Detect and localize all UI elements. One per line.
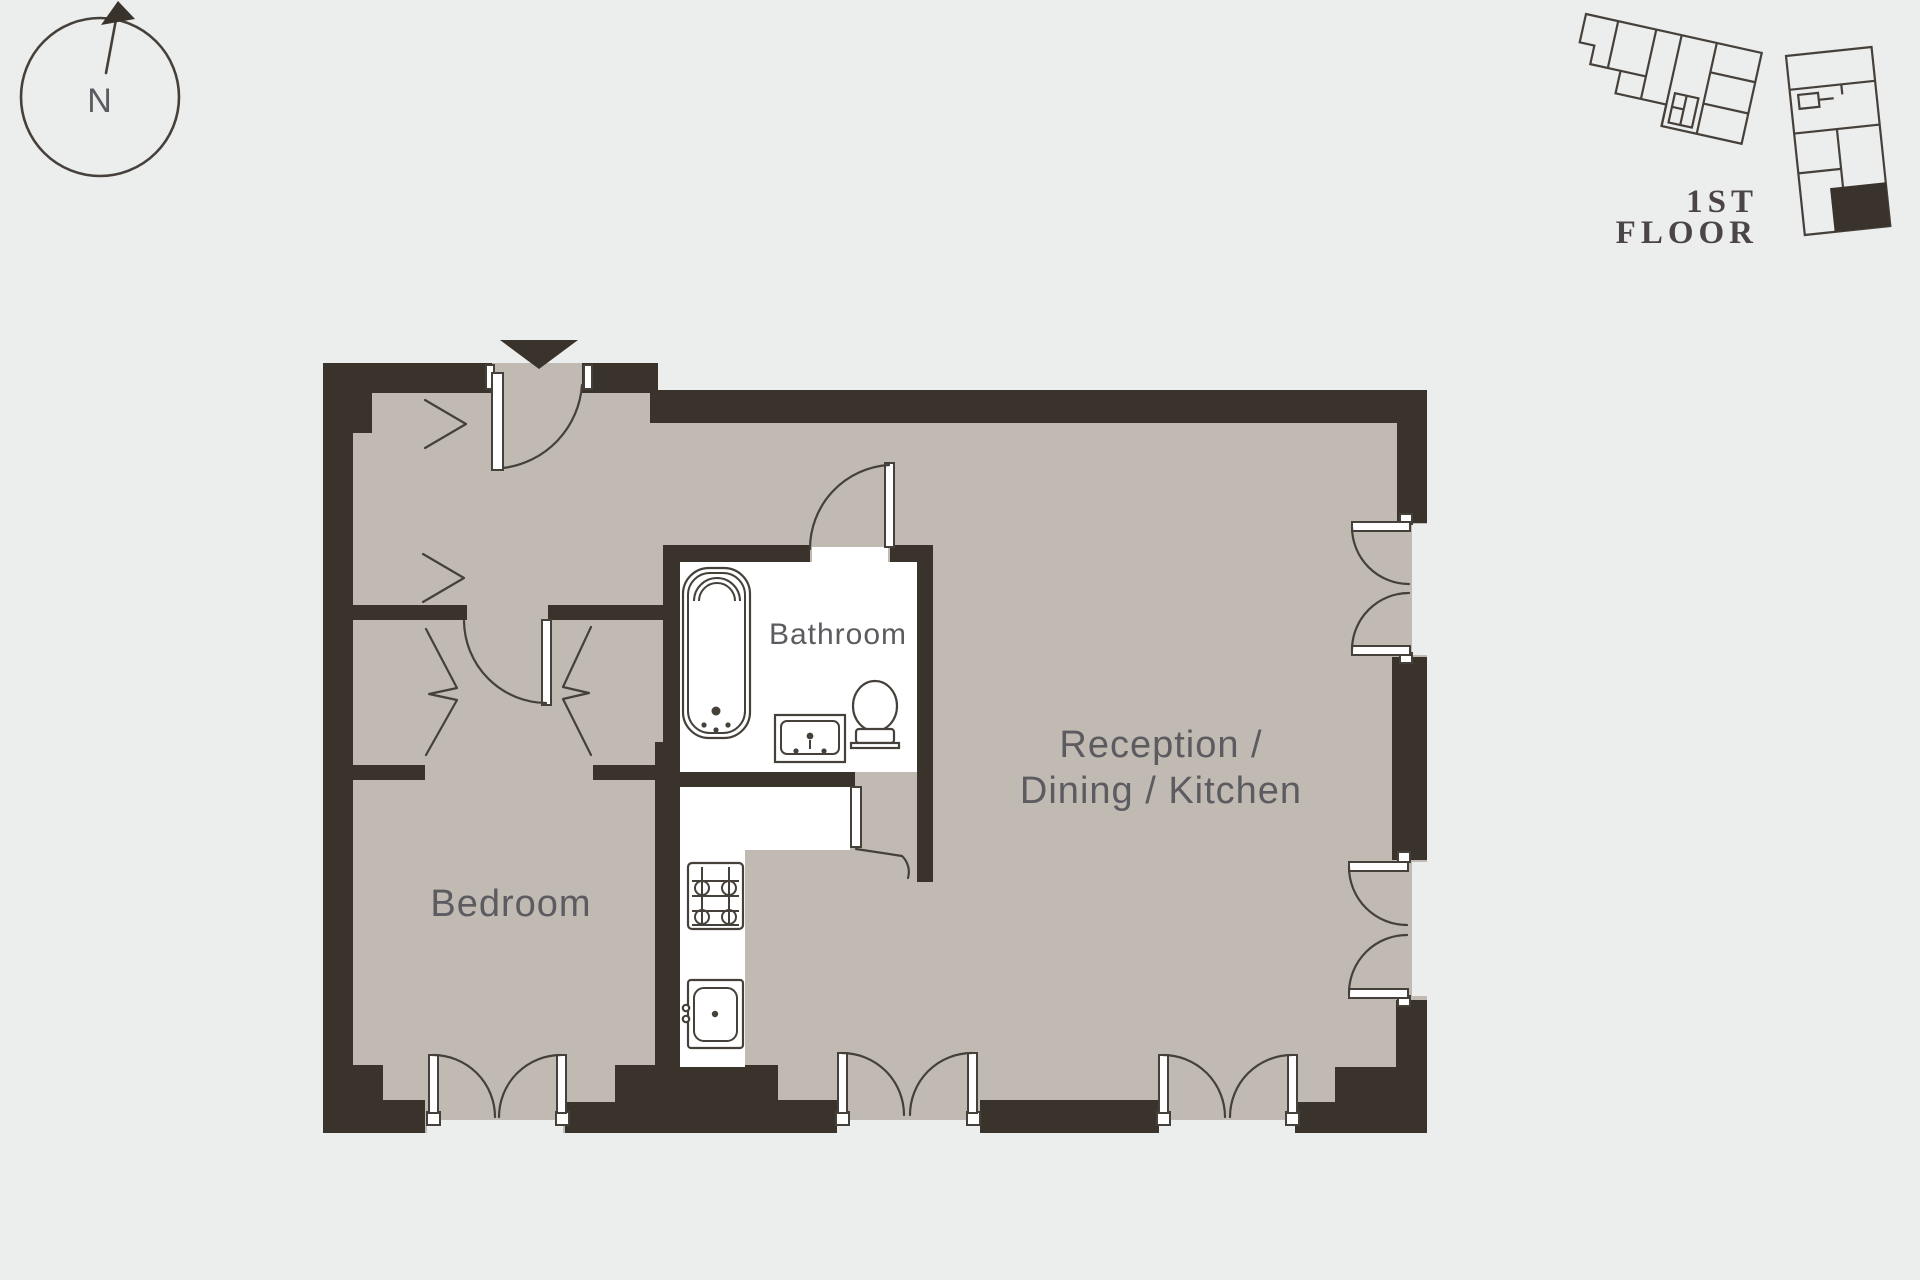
wall-segment: [615, 1065, 778, 1133]
site-building-right: [1786, 47, 1890, 235]
door-leaf: [968, 1053, 977, 1113]
north-arrow-icon: [101, 1, 135, 25]
wall-segment: [1392, 657, 1427, 860]
door-leaf: [1352, 522, 1410, 531]
compass-north-label: N: [87, 82, 113, 120]
wall-segment: [1335, 1067, 1396, 1133]
wall-segment: [323, 363, 353, 1065]
kitchen-sink: [683, 980, 743, 1048]
door-jamb: [1398, 852, 1410, 862]
site-building-left: [1566, 14, 1762, 144]
door-jamb: [584, 365, 592, 389]
door-leaf: [1352, 646, 1410, 655]
wall-segment: [353, 605, 467, 620]
room-label-reception-line1: Reception /: [1059, 724, 1262, 766]
wall-segment: [663, 545, 680, 775]
highlighted-unit: [1830, 182, 1890, 232]
washbasin: [775, 715, 845, 762]
door-leaf: [429, 1055, 438, 1113]
wall-segment: [565, 1102, 615, 1133]
floorplan-page: N 1ST FLOOR: [0, 0, 1920, 1280]
wall-segment: [655, 742, 680, 1067]
door-leaf: [885, 463, 894, 547]
floor-label-line2: FLOOR: [1616, 215, 1758, 251]
door-leaf: [1288, 1055, 1297, 1113]
wall-segment: [917, 545, 933, 882]
wall-segment: [663, 770, 855, 787]
door-leaf: [851, 787, 861, 847]
wall-segment: [663, 545, 810, 562]
site-plan: 1ST FLOOR: [1566, 14, 1890, 251]
room-label-bedroom: Bedroom: [430, 883, 591, 925]
wall-segment: [1397, 390, 1427, 523]
wall-segment: [650, 390, 1427, 423]
wall-segment: [548, 605, 667, 620]
floorplan: Bathroom Bedroom Reception / Dining / Ki…: [323, 340, 1452, 1134]
wall-segment: [980, 1100, 1159, 1133]
door-leaf: [838, 1053, 847, 1113]
door-leaf: [1159, 1055, 1168, 1113]
bathroom-door-threshold: [812, 547, 888, 562]
wall-segment: [323, 1100, 425, 1133]
hob: [688, 863, 743, 929]
wall-segment: [1396, 1000, 1427, 1133]
door-leaf: [1349, 989, 1408, 998]
door-leaf: [557, 1055, 566, 1113]
entrance-door-leaf: [492, 373, 503, 470]
door-leaf: [542, 620, 551, 705]
bathtub: [683, 568, 750, 738]
door-leaf: [1349, 862, 1408, 871]
wall-segment: [353, 765, 425, 780]
wall-segment: [1295, 1102, 1335, 1133]
wall-segment: [593, 765, 660, 780]
compass: N: [21, 1, 179, 176]
room-label-bathroom: Bathroom: [769, 618, 907, 651]
wall-segment: [582, 363, 658, 393]
room-label-reception-line2: Dining / Kitchen: [1020, 770, 1302, 812]
toilet: [851, 681, 899, 748]
wall-segment: [778, 1100, 837, 1133]
